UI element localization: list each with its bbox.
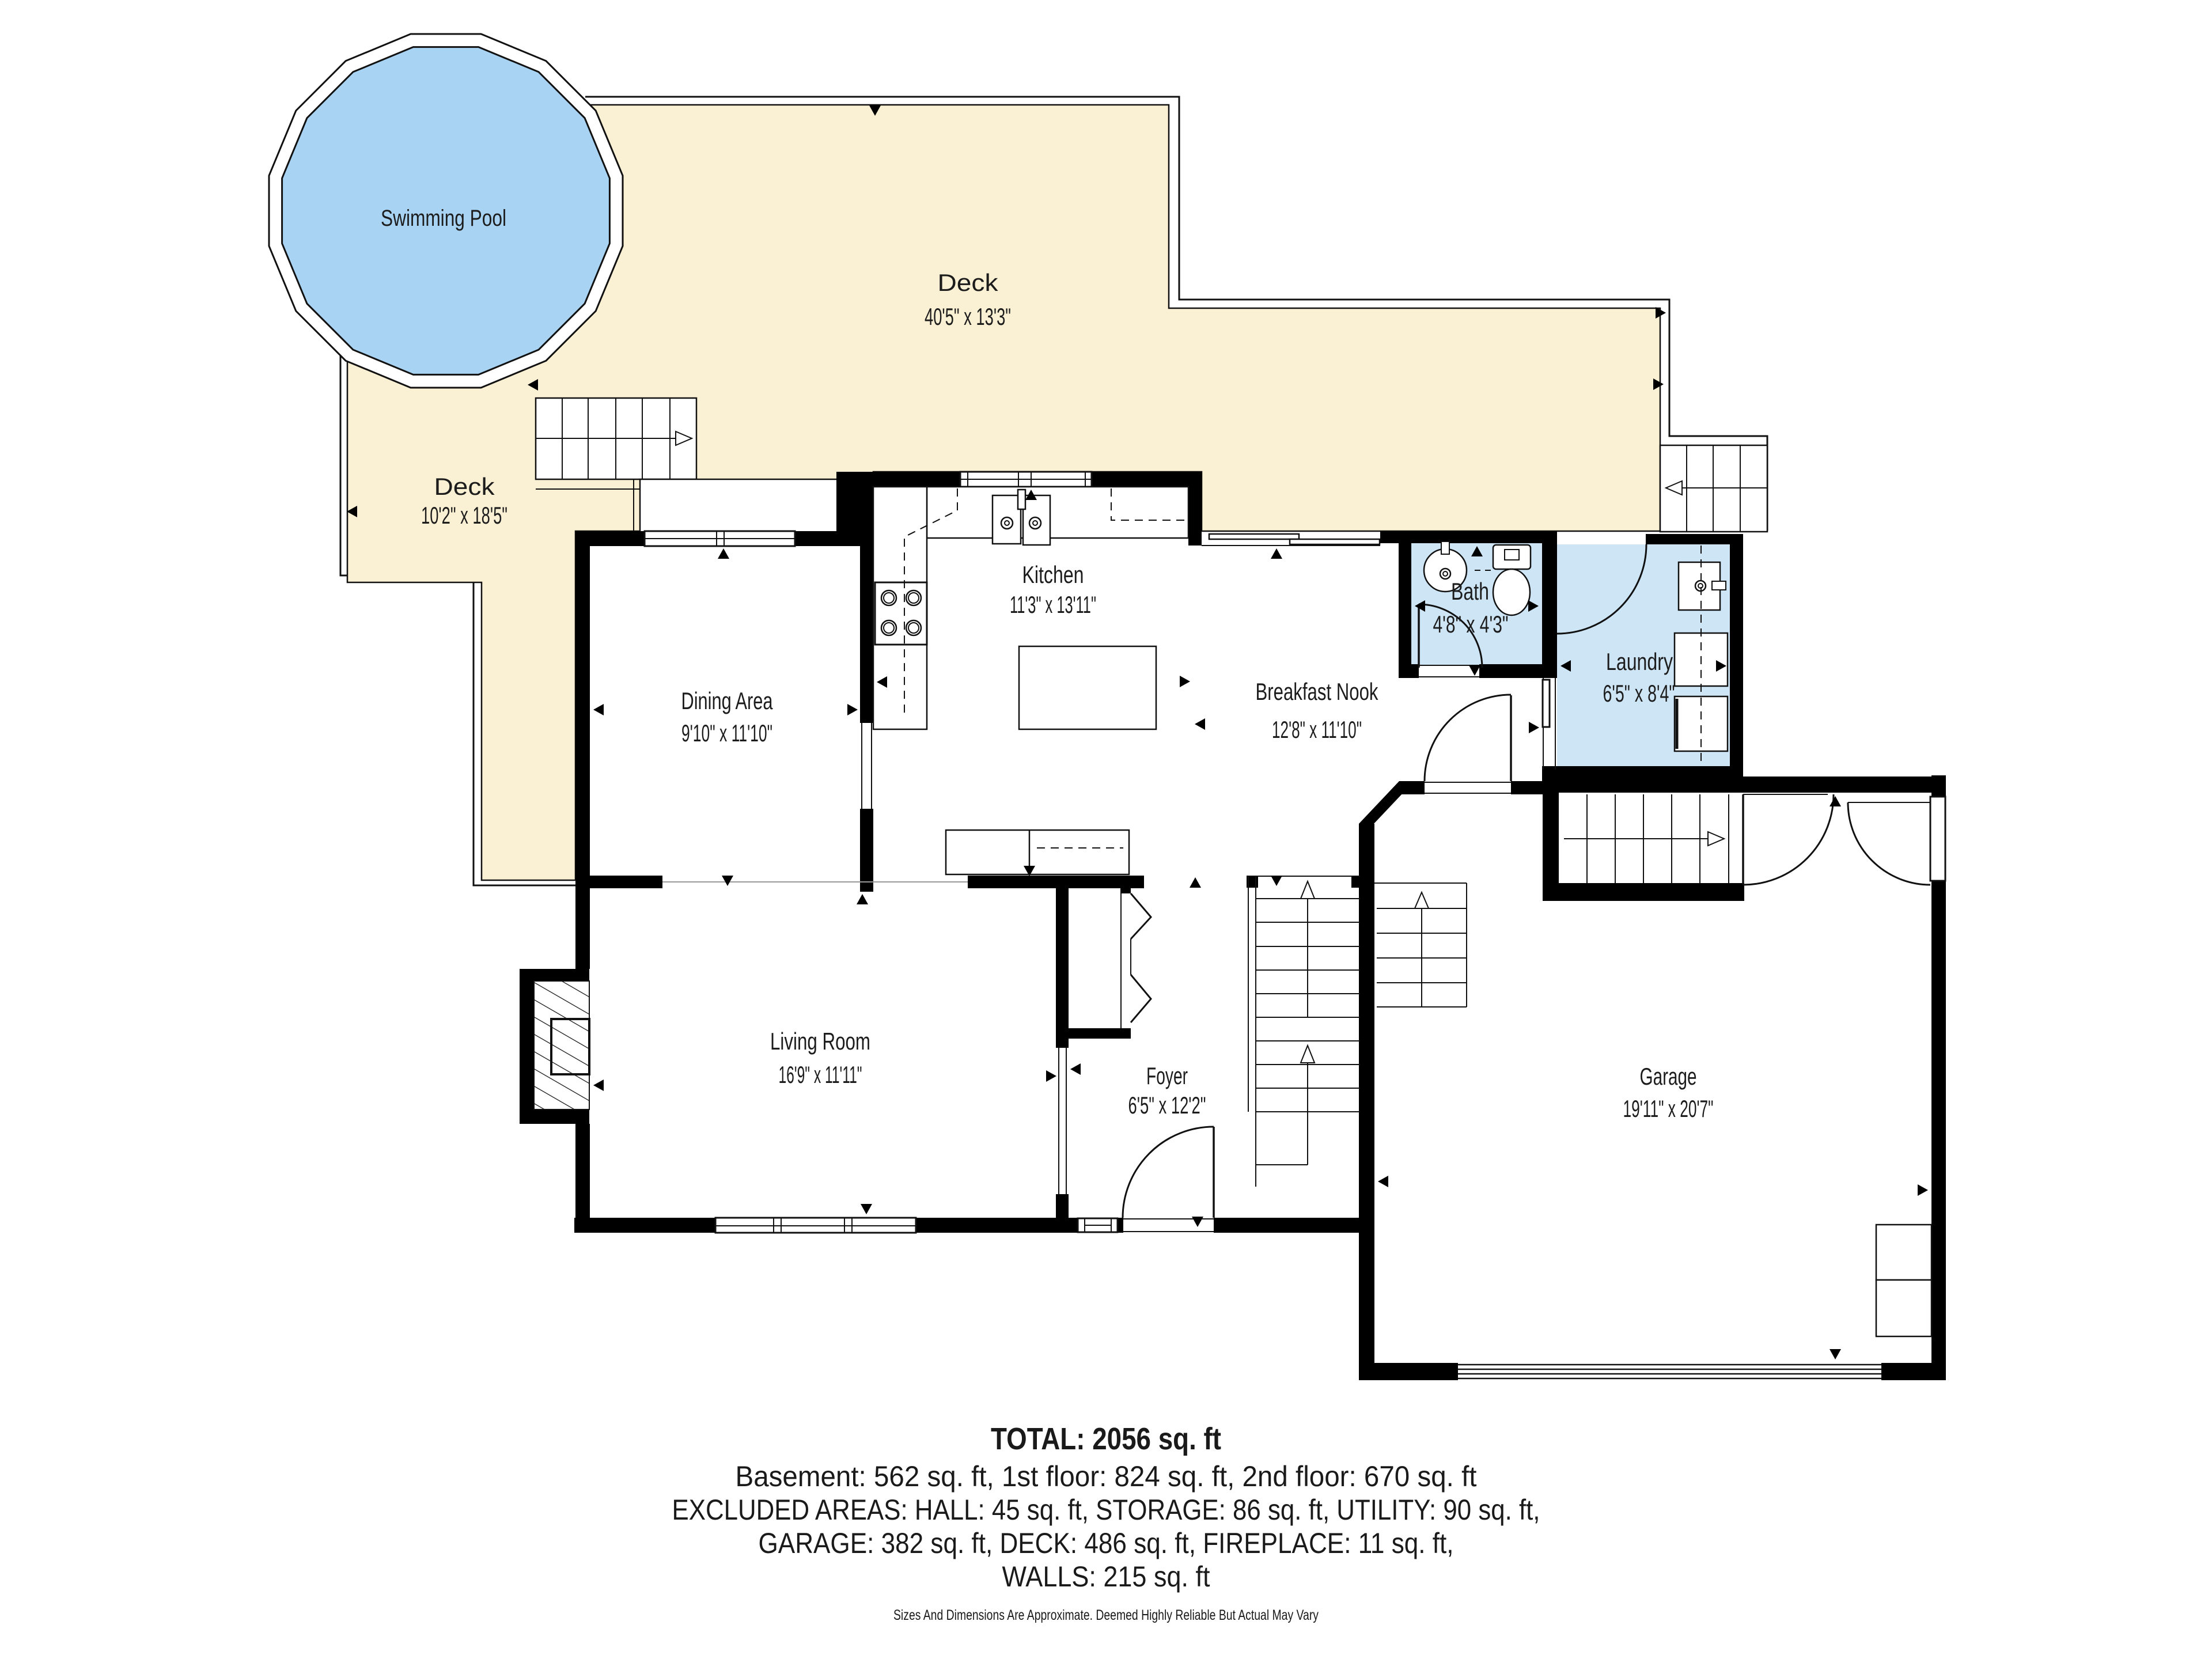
svg-text:Basement: 562 sq. ft, 1st floo: Basement: 562 sq. ft, 1st floor: 824 sq.… bbox=[736, 1460, 1477, 1493]
svg-text:Kitchen: Kitchen bbox=[1022, 561, 1084, 588]
svg-text:Dining Area: Dining Area bbox=[681, 687, 773, 714]
svg-text:9'10" x 11'10": 9'10" x 11'10" bbox=[681, 719, 772, 747]
svg-text:6'5" x 8'4": 6'5" x 8'4" bbox=[1603, 680, 1675, 707]
svg-text:Bath: Bath bbox=[1451, 578, 1489, 605]
svg-text:Breakfast Nook: Breakfast Nook bbox=[1256, 678, 1379, 705]
svg-text:10'2" x 18'5": 10'2" x 18'5" bbox=[421, 502, 507, 529]
svg-text:12'8" x 11'10": 12'8" x 11'10" bbox=[1272, 716, 1362, 743]
svg-text:WALLS: 215 sq. ft: WALLS: 215 sq. ft bbox=[1002, 1560, 1210, 1593]
svg-text:Laundry: Laundry bbox=[1606, 648, 1673, 675]
svg-text:16'9" x 11'11": 16'9" x 11'11" bbox=[779, 1061, 862, 1088]
svg-text:Foyer: Foyer bbox=[1146, 1062, 1188, 1089]
svg-text:EXCLUDED AREAS: HALL: 45 sq. f: EXCLUDED AREAS: HALL: 45 sq. ft, STORAGE… bbox=[672, 1494, 1540, 1526]
svg-text:6'5" x 12'2": 6'5" x 12'2" bbox=[1128, 1092, 1206, 1119]
svg-text:GARAGE: 382 sq. ft, DECK: 486: GARAGE: 382 sq. ft, DECK: 486 sq. ft, FI… bbox=[759, 1527, 1454, 1559]
svg-text:TOTAL: 2056 sq. ft: TOTAL: 2056 sq. ft bbox=[991, 1422, 1221, 1456]
svg-text:Sizes And Dimensions Are Appro: Sizes And Dimensions Are Approximate. De… bbox=[893, 1607, 1319, 1623]
svg-text:Swimming Pool: Swimming Pool bbox=[381, 206, 506, 231]
svg-text:Deck: Deck bbox=[938, 269, 999, 296]
svg-text:Deck: Deck bbox=[434, 473, 495, 500]
svg-text:Living Room: Living Room bbox=[770, 1028, 870, 1055]
svg-text:11'3" x 13'11": 11'3" x 13'11" bbox=[1010, 591, 1096, 618]
svg-text:Garage: Garage bbox=[1640, 1063, 1697, 1090]
svg-text:19'11" x 20'7": 19'11" x 20'7" bbox=[1623, 1095, 1714, 1122]
svg-text:4'8" x 4'3": 4'8" x 4'3" bbox=[1433, 611, 1509, 638]
svg-text:40'5" x 13'3": 40'5" x 13'3" bbox=[925, 303, 1011, 330]
